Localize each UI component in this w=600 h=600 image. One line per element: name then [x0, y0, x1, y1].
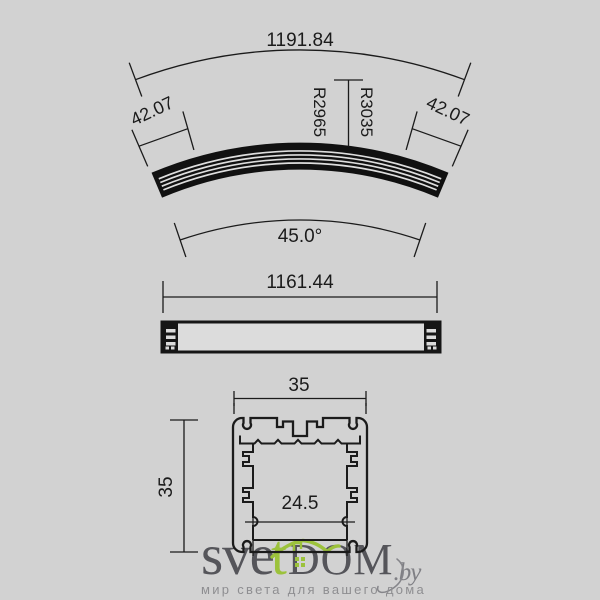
side-profile-endcap-right [424, 324, 439, 351]
side-profile-view: 1161.44 [162, 272, 440, 352]
dim-radius-outer-label: R3035 [357, 87, 376, 137]
curved-profile-view: 1191.84 42.07 42.07 R2965 R3035 [127, 30, 472, 257]
cross-section-wall-left [243, 444, 258, 541]
dim-arc-length [129, 50, 471, 97]
dim-length-label: 1161.44 [266, 272, 334, 293]
dim-cs-width-label: 35 [288, 375, 309, 396]
technical-drawing-page: svetDOM.by мир света для вашего дома [0, 0, 600, 600]
dim-cs-inner-width-label: 24.5 [282, 493, 319, 514]
profile-drawing: 1191.84 42.07 42.07 R2965 R3035 [0, 0, 600, 600]
dim-radius-inner-label: R2965 [310, 87, 329, 137]
dim-arc-length-label: 1191.84 [266, 30, 334, 51]
dim-angle-label: 45.0° [278, 226, 323, 247]
side-profile-body [162, 322, 440, 352]
dim-cs-height-label: 35 [156, 476, 177, 497]
cross-section-view: 35 35 24.5 [156, 375, 367, 556]
cross-section-wall-right [343, 444, 358, 541]
dim-end-width-left-label: 42.07 [127, 92, 176, 129]
dim-end-width-right-label: 42.07 [423, 92, 472, 129]
side-profile-endcap-left [164, 324, 179, 351]
